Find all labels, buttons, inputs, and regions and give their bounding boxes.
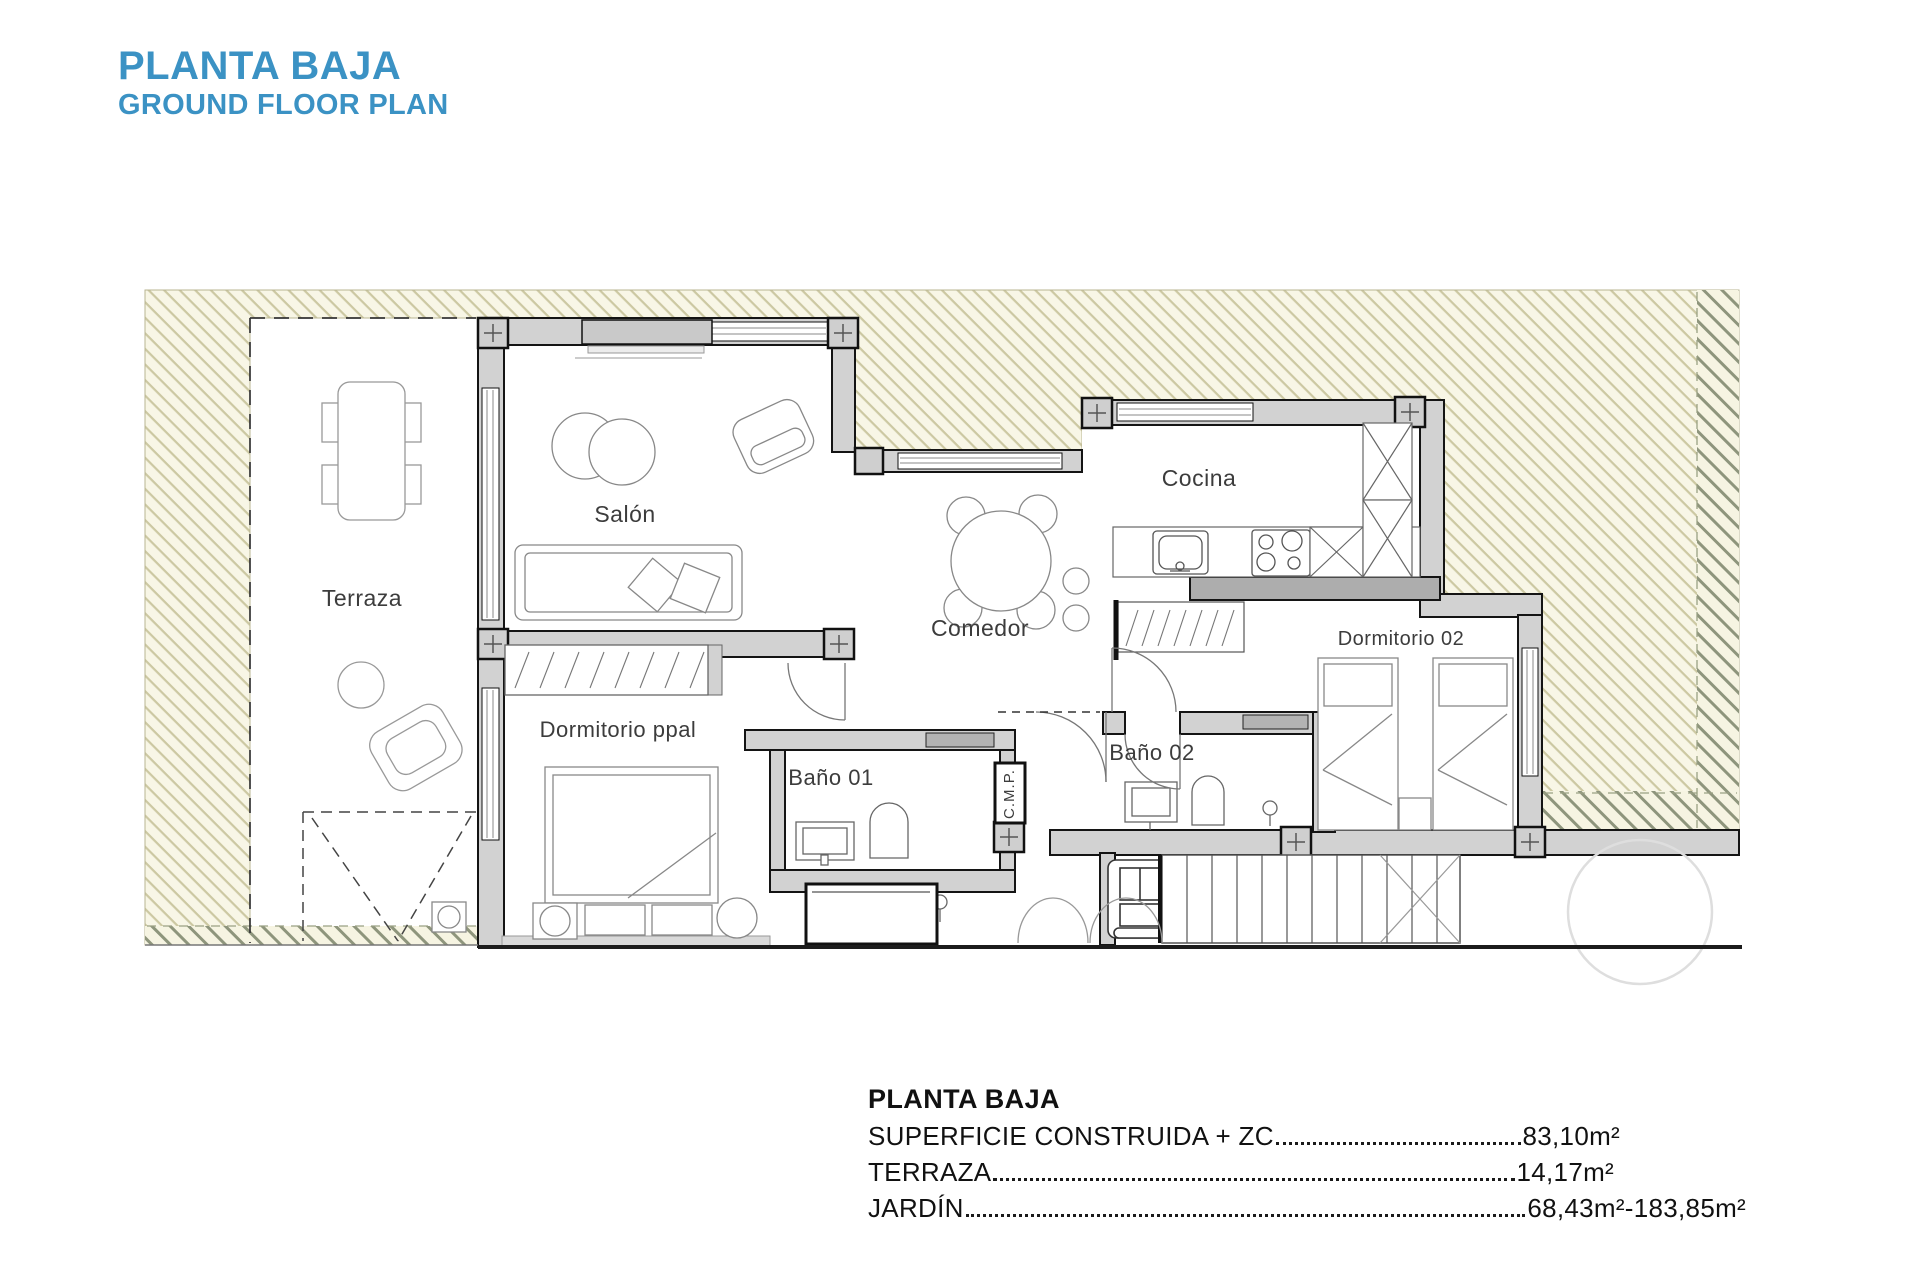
breakfast-bar bbox=[1116, 600, 1244, 660]
dotted-leader bbox=[1276, 1142, 1521, 1145]
boundary-strip-bottom-right bbox=[1542, 791, 1739, 830]
summary-row-construida: SUPERFICIE CONSTRUIDA + ZC 83,10m² bbox=[868, 1118, 1620, 1154]
room-label-comedor: Comedor bbox=[931, 615, 1029, 641]
terrace-side-table bbox=[338, 662, 384, 708]
salon-round-table bbox=[552, 413, 655, 485]
summary-heading: PLANTA BAJA bbox=[868, 1084, 1748, 1115]
boundary-strip-right bbox=[1697, 290, 1739, 830]
sofa bbox=[515, 545, 742, 620]
room-label-bano-01: Baño 01 bbox=[788, 765, 873, 790]
summary-row-jardin: JARDÍN 68,43m²-183,85m² bbox=[868, 1190, 1746, 1226]
room-label-salon: Salón bbox=[594, 501, 655, 527]
summary-label: SUPERFICIE CONSTRUIDA + ZC bbox=[868, 1118, 1274, 1154]
terrace-dining-set bbox=[322, 382, 421, 520]
dotted-leader bbox=[993, 1178, 1514, 1181]
driveway-arc bbox=[1568, 840, 1712, 984]
room-label-terraza: Terraza bbox=[322, 585, 402, 611]
entrance-porch bbox=[806, 884, 937, 944]
room-label-dormitorio-ppal: Dormitorio ppal bbox=[540, 717, 697, 742]
summary-label: TERRAZA bbox=[868, 1154, 991, 1190]
room-label-dormitorio-02: Dormitorio 02 bbox=[1338, 628, 1465, 650]
dining-table-round bbox=[944, 495, 1057, 629]
summary-value: 83,10m² bbox=[1523, 1118, 1620, 1154]
room-label-bano-02: Baño 02 bbox=[1109, 740, 1194, 765]
summary-label: JARDÍN bbox=[868, 1190, 964, 1226]
summary-value: 14,17m² bbox=[1517, 1154, 1614, 1190]
vent-window bbox=[926, 733, 994, 747]
vent-window bbox=[1243, 715, 1308, 729]
summary-value: 68,43m²-183,85m² bbox=[1527, 1190, 1746, 1226]
room-label-cocina: Cocina bbox=[1162, 465, 1237, 491]
boundary-strip-bottom-left bbox=[145, 926, 478, 945]
floor-plan-page: { "header": { "title": "PLANTA BAJA", "s… bbox=[0, 0, 1920, 1280]
summary-row-terraza: TERRAZA 14,17m² bbox=[868, 1154, 1614, 1190]
surface-summary: PLANTA BAJA SUPERFICIE CONSTRUIDA + ZC 8… bbox=[868, 1084, 1748, 1226]
terrace-armchair bbox=[364, 698, 468, 796]
dotted-leader bbox=[966, 1214, 1526, 1217]
tv-cabinet bbox=[575, 320, 712, 358]
room-label-cmp: C.M.P. bbox=[1001, 769, 1018, 819]
wardrobe-main-bedroom bbox=[505, 645, 708, 695]
